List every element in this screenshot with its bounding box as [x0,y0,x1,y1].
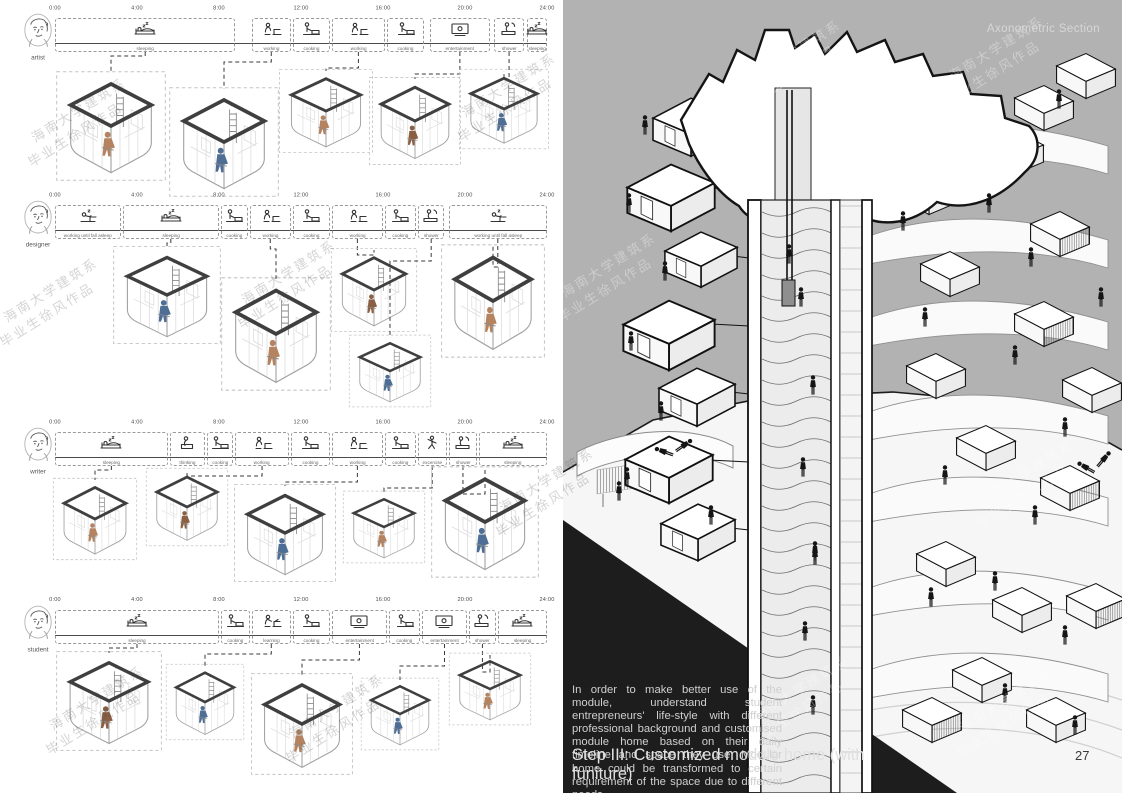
activity-label: sleeping [514,46,560,51]
activity-box-bed: sleeping [498,610,547,644]
cook-icon [299,613,323,629]
cook-icon [298,435,322,451]
work-icon [258,208,282,224]
cook-icon [394,21,418,37]
activity-box-bed: sleeping [55,610,219,644]
activity-label: sleeping [477,460,550,465]
cook-icon [222,208,246,224]
time-tick: 0:00 [43,418,67,424]
work-icon [346,21,370,37]
cook-icon [388,208,412,224]
activity-box-work: working [235,432,288,466]
time-tick: 12:00 [289,418,313,424]
activity-label: sleeping [62,460,161,465]
activity-box-wsleep: working until fall asleep [449,205,547,239]
activity-box-shower: shower [449,432,478,466]
time-tick: 16:00 [371,596,395,602]
user-label: designer [20,241,57,248]
bed-icon [525,21,549,37]
time-tick: 16:00 [371,191,395,197]
time-tick: 12:00 [289,4,313,10]
activity-box-cook: cooking [387,18,424,52]
wsleep-icon [76,208,100,224]
face-icon [21,425,55,465]
activity-box-screen: entertainment [430,18,489,52]
screen-icon [347,613,371,629]
drawing-title: Axonometric Section [987,23,1100,35]
wsleep-icon [486,208,510,224]
shower-icon [451,435,475,451]
time-tick: 4:00 [125,596,149,602]
bed-icon [99,435,123,451]
cook-icon [223,613,247,629]
time-tick: 8:00 [207,4,231,10]
cook-icon [208,435,232,451]
time-tick: 4:00 [125,418,149,424]
cook-icon [393,613,417,629]
shower-icon [497,21,521,37]
page-number: 27 [1075,748,1089,763]
time-tick: 16:00 [371,418,395,424]
activity-box-bed: sleeping [55,18,235,52]
bed-icon [125,613,149,629]
activity-box-bed: sleeping [55,432,168,466]
time-tick: 16:00 [371,4,395,10]
screen-icon [432,613,456,629]
activity-label: sleeping [73,638,202,643]
time-tick: 20:00 [453,418,477,424]
activity-box-cook: cooking [293,610,330,644]
portfolio-page: artist0:004:008:0012:0016:0020:0024:00sl… [0,0,1122,793]
work-icon [250,435,274,451]
time-tick: 12:00 [289,596,313,602]
time-tick: 20:00 [453,596,477,602]
shower-icon [419,208,443,224]
activity-box-wsleep: working until fall asleep [55,205,121,239]
learn-icon [259,613,283,629]
time-tick: 8:00 [207,191,231,197]
bed-icon [133,21,157,37]
time-tick: 24:00 [535,4,559,10]
time-tick: 4:00 [125,191,149,197]
activity-box-bed: sleeping [527,18,548,52]
time-tick: 0:00 [43,4,67,10]
work-icon [345,435,369,451]
face-icon [21,11,55,51]
time-tick: 12:00 [289,191,313,197]
step-title: Step III: Customized module home (with f… [572,746,917,784]
timelines-container: artist0:004:008:0012:0016:0020:0024:00sl… [0,0,563,793]
activity-box-bed: sleeping [123,205,219,239]
time-tick: 24:00 [535,418,559,424]
user-label: student [20,646,57,653]
cook-icon [299,21,323,37]
time-tick: 8:00 [207,418,231,424]
activity-label: sleeping [76,46,214,51]
think-icon [175,435,199,451]
time-tick: 20:00 [453,191,477,197]
bed-icon [159,208,183,224]
ex-icon [420,435,444,451]
work-icon [259,21,283,37]
face-icon [21,603,55,643]
activity-box-cook: cooking [293,205,330,239]
time-tick: 20:00 [453,4,477,10]
work-icon [345,208,369,224]
time-tick: 24:00 [535,596,559,602]
shower-icon [470,613,494,629]
time-tick: 24:00 [535,191,559,197]
cook-icon [299,208,323,224]
screen-icon [448,21,472,37]
user-label: writer [20,468,57,475]
face-icon [21,198,55,238]
time-tick: 8:00 [207,596,231,602]
bed-icon [501,435,525,451]
tower-axonometric-drawing [563,0,1122,793]
cook-icon [388,435,412,451]
user-label: artist [20,54,57,61]
time-tick: 0:00 [43,596,67,602]
activity-label: sleeping [491,638,553,643]
activity-box-bed: sleeping [479,432,547,466]
axonometric-panel: Axonometric Section In order to make bet… [563,0,1122,793]
activity-label: working until fall asleep [452,233,543,238]
activity-box-cook: cooking [291,432,330,466]
activity-box-shower: shower [418,205,445,239]
bed-icon [510,613,534,629]
time-tick: 4:00 [125,4,149,10]
activity-label: working until fall asleep [52,233,124,238]
activity-label: sleeping [126,233,216,238]
time-tick: 0:00 [43,191,67,197]
activity-box-cook: cooking [293,18,330,52]
timeline-panel: artist0:004:008:0012:0016:0020:0024:00sl… [0,0,563,793]
